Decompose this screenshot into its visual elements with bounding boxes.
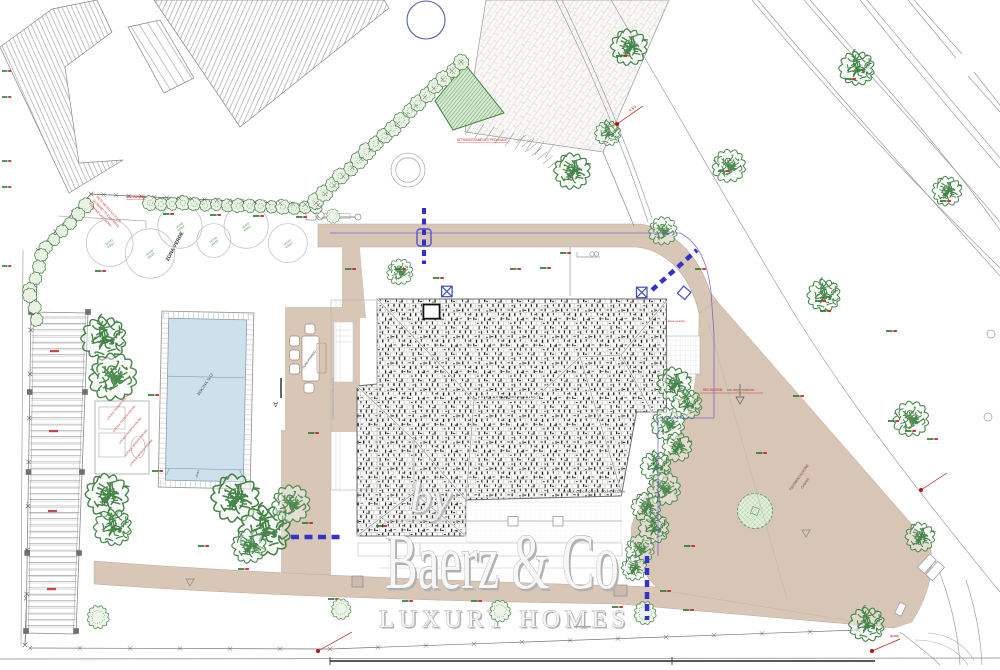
svg-text:con siepe esistente: con siepe esistente [727, 388, 755, 392]
svg-text:Baerz & Co: Baerz & Co [385, 518, 619, 606]
svg-text:linea gronda: linea gronda [668, 319, 685, 323]
svg-text:ATTRAVERSAMENTO PEDONALE: ATTRAVERSAMENTO PEDONALE [457, 138, 507, 142]
svg-text:A: A [273, 400, 278, 407]
svg-text:RECINZIONE: RECINZIONE [126, 195, 146, 199]
svg-text:RECINZIONE: RECINZIONE [703, 388, 723, 392]
svg-text:CAMMINAMENTO IN PIETRA LOCALE: CAMMINAMENTO IN PIETRA LOCALE [332, 377, 335, 420]
svg-text:LINEA DI GRONDA COPERTURA: LINEA DI GRONDA COPERTURA [563, 490, 625, 494]
svg-text:COLMO COPERTURA TEGOLE: COLMO COPERTURA TEGOLE [478, 395, 533, 399]
svg-text:quota: quota [890, 634, 899, 638]
svg-text:by: by [410, 473, 452, 522]
